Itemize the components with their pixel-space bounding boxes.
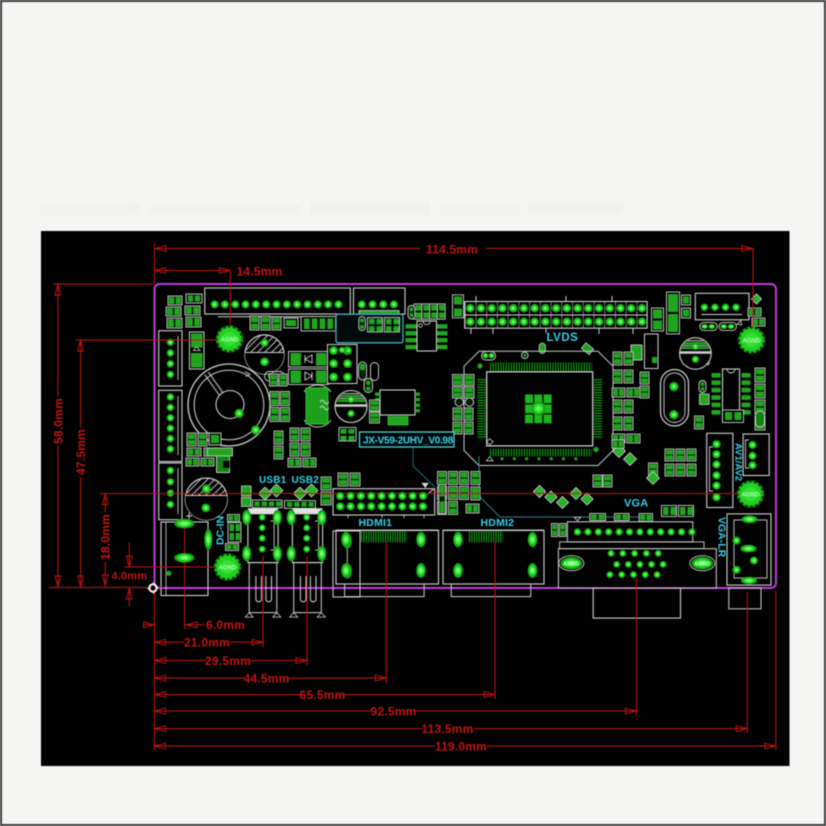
svg-text:JX-V59-2UHV_V0.98: JX-V59-2UHV_V0.98	[363, 436, 454, 447]
svg-text:AGND: AGND	[694, 562, 710, 568]
svg-text:114.5mm: 114.5mm	[426, 242, 478, 256]
svg-text:AGND: AGND	[220, 336, 239, 343]
svg-text:VGA-LR: VGA-LR	[716, 517, 728, 558]
svg-text:14.5mm: 14.5mm	[237, 264, 283, 278]
svg-text:119.0mm: 119.0mm	[435, 739, 487, 753]
svg-text:113.5mm: 113.5mm	[421, 722, 473, 736]
svg-text:18.0mm: 18.0mm	[99, 514, 113, 560]
svg-text:AGND: AGND	[563, 562, 579, 568]
svg-text:HDMI1: HDMI1	[359, 517, 393, 529]
svg-text:58.0mm: 58.0mm	[51, 398, 65, 444]
svg-text:AV1/AV2: AV1/AV2	[733, 443, 744, 481]
svg-text:21.0mm: 21.0mm	[184, 636, 230, 650]
svg-text:USB1: USB1	[259, 475, 287, 486]
svg-text:AGND: AGND	[741, 491, 760, 498]
svg-text:HDMI2: HDMI2	[481, 517, 515, 529]
svg-text:29.5mm: 29.5mm	[205, 654, 251, 668]
svg-text:VGA: VGA	[624, 498, 648, 510]
svg-text:92.5mm: 92.5mm	[371, 704, 417, 718]
svg-text:4.0mm: 4.0mm	[111, 571, 147, 583]
svg-text:47.5mm: 47.5mm	[74, 429, 88, 475]
svg-text:44.5mm: 44.5mm	[244, 671, 290, 685]
svg-text:65.5mm: 65.5mm	[300, 688, 346, 702]
svg-text:USB2: USB2	[292, 475, 320, 486]
svg-text:LVDS: LVDS	[547, 332, 579, 344]
svg-text:6.0mm: 6.0mm	[206, 618, 245, 632]
svg-text:AGND: AGND	[218, 564, 237, 571]
svg-text:DC-IN: DC-IN	[215, 516, 227, 545]
svg-text:AGND: AGND	[742, 337, 761, 344]
